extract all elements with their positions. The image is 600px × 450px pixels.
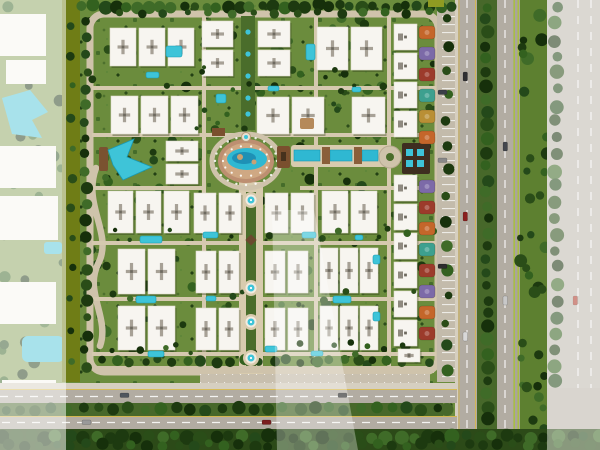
- site-plan-svg: [0, 0, 600, 450]
- median-trees: [483, 228, 495, 240]
- plaza-paving-dots: [263, 179, 265, 181]
- courtyard-trees: [229, 293, 236, 300]
- west-tree-border: [82, 135, 90, 143]
- parked-car: [438, 90, 447, 95]
- south-belt-trees: [465, 439, 474, 448]
- north-tree-border: [426, 7, 434, 15]
- residential-cluster-roof-core: [123, 114, 126, 117]
- courtyard-trees: [403, 229, 411, 237]
- roadside-trees: [522, 264, 530, 272]
- residential-cluster-roof-core: [205, 271, 208, 274]
- courtyard-trees: [377, 235, 382, 240]
- plaza-furniture-dots: [224, 153, 226, 155]
- courtyard-trees: [113, 228, 117, 232]
- flowerbed-highlight: [425, 184, 430, 189]
- north-tree-border: [358, 8, 367, 17]
- compound-garden-trees: [188, 282, 198, 292]
- axis-fountain-jet: [250, 199, 252, 201]
- residential-cluster-roof-core: [122, 46, 125, 49]
- median-end-cap: [441, 403, 454, 416]
- roadside-trees: [540, 404, 547, 411]
- median-trees: [481, 412, 494, 425]
- roadside-trees: [526, 154, 534, 162]
- plaza-furniture-dots: [259, 172, 261, 174]
- parking-trees: [443, 164, 454, 175]
- townhouse-row-roof-core: [404, 123, 407, 126]
- pavilion: [322, 147, 330, 164]
- olive-strip-trees: [66, 204, 75, 213]
- townhouse-row-roof-mark: [398, 330, 403, 337]
- plaza-paving-dots: [215, 152, 217, 154]
- plaza-paving-dots: [227, 140, 229, 142]
- compound-garden-trees: [334, 107, 340, 113]
- plaza-fountain-water: [244, 135, 248, 139]
- clubhouse-roof-core: [408, 354, 411, 357]
- median-trees: [480, 118, 494, 132]
- courtyard-trees: [164, 83, 170, 89]
- street: [92, 352, 436, 356]
- median-trees: [481, 160, 491, 170]
- garden-pool: [216, 94, 226, 103]
- car: [503, 296, 508, 305]
- olive-strip-trees: [69, 264, 76, 271]
- parking-trees: [441, 240, 453, 252]
- south-belt-trees: [205, 439, 213, 447]
- median-trees: [483, 3, 492, 12]
- south-belt-trees: [478, 440, 488, 450]
- roadside-trees: [520, 37, 527, 44]
- south-belt-trees: [486, 430, 496, 440]
- garden-pool: [373, 255, 380, 264]
- south-belt-trees: [357, 439, 367, 449]
- median-trees: [481, 132, 494, 145]
- parking-trees: [445, 292, 453, 300]
- south-buffer-trees: [112, 355, 123, 366]
- plaza-furniture-dots: [266, 153, 268, 155]
- residential-cluster-roof-core: [307, 114, 310, 117]
- median-trees: [122, 402, 134, 414]
- parking-trees: [442, 66, 451, 75]
- north-tree-border: [335, 0, 344, 9]
- axis-pond: [245, 95, 250, 100]
- residential-cluster-roof-core: [363, 211, 366, 214]
- courtyard-trees: [173, 342, 179, 348]
- plaza-paving-dots: [254, 183, 256, 185]
- garden-pool: [140, 236, 162, 243]
- residential-cluster-roof-core: [331, 47, 334, 50]
- median-trees: [482, 175, 494, 187]
- axis-pond: [245, 51, 250, 56]
- residential-cluster-roof-core: [348, 269, 351, 272]
- plaza-furniture-dots: [250, 145, 252, 147]
- pool-deck: [99, 147, 108, 171]
- residential-cluster-roof-core: [205, 328, 208, 331]
- south-belt-trees: [373, 439, 383, 449]
- townhouse-row-roof-core: [404, 187, 407, 190]
- townhouse-row-roof-mark: [398, 63, 403, 70]
- gate-pool: [417, 160, 424, 167]
- compound-garden-trees: [331, 102, 336, 107]
- roadside-trees: [536, 191, 544, 199]
- pavilion-core: [281, 152, 286, 161]
- plaza-paving-dots: [274, 167, 276, 169]
- plaza-paving-dots: [270, 146, 272, 148]
- courtyard-trees: [110, 291, 117, 298]
- west-tree-border: [82, 264, 93, 275]
- courtyard-trees: [297, 71, 304, 78]
- south-belt-trees: [126, 440, 135, 449]
- parking-trees: [443, 141, 453, 151]
- median-trees: [434, 404, 442, 412]
- flowerbed-highlight: [425, 51, 430, 56]
- median-trees: [482, 268, 491, 277]
- olive-strip-trees: [68, 174, 77, 183]
- olive-strip-trees: [67, 327, 74, 334]
- sidewalk: [0, 383, 457, 390]
- plaza-paving-dots: [220, 146, 222, 148]
- residential-cluster-roof-core: [160, 270, 163, 273]
- plaza-furniture-dots: [259, 148, 261, 150]
- parking-trees: [443, 14, 451, 22]
- north-tree-border: [323, 1, 334, 12]
- olive-strip-trees: [68, 358, 75, 365]
- compound-garden-trees: [381, 346, 387, 352]
- south-buffer-trees: [382, 356, 392, 366]
- plaza-paving-dots: [220, 174, 222, 176]
- south-buffer-trees: [184, 357, 193, 366]
- corner-green: [428, 0, 444, 7]
- roadside-trees: [538, 285, 547, 294]
- south-belt-trees: [446, 441, 455, 450]
- townhouse-row-roof-mark: [398, 121, 403, 128]
- residential-cluster-roof-core: [365, 47, 368, 50]
- townhouse-row-roof-core: [404, 36, 407, 39]
- courtyard-trees: [380, 83, 388, 91]
- west-tree-border: [82, 331, 93, 342]
- residential-cluster-roof-core: [228, 328, 231, 331]
- car: [82, 420, 91, 425]
- garden-gazebo: [300, 118, 314, 129]
- courtyard-trees: [127, 295, 133, 301]
- flowerbed-highlight: [425, 310, 430, 315]
- west-tree-border: [84, 68, 92, 76]
- courtyard-trees: [215, 121, 220, 126]
- median-trees: [171, 402, 182, 413]
- linear-pool: [330, 150, 352, 161]
- median-trees: [482, 281, 491, 290]
- north-tree-border: [165, 2, 176, 13]
- car: [262, 420, 271, 425]
- garden-pool: [306, 44, 315, 60]
- roadside-trees: [534, 350, 543, 359]
- west-tree-border: [82, 199, 92, 209]
- residential-cluster-roof-core: [153, 114, 156, 117]
- compound-garden-trees: [149, 156, 158, 165]
- south-belt-trees: [211, 431, 223, 443]
- compound-garden-trees: [225, 302, 231, 308]
- courtyard-trees: [323, 75, 328, 80]
- north-tree-border: [191, 2, 199, 10]
- south-buffer-trees: [98, 356, 106, 364]
- olive-strip-trees: [66, 114, 75, 123]
- roadside-trees: [518, 339, 527, 348]
- median-trees: [480, 186, 491, 197]
- parking-trees: [441, 339, 452, 350]
- south-belt-trees: [170, 431, 180, 441]
- pavilion: [354, 147, 362, 164]
- west-tree-border: [83, 313, 91, 321]
- median-trees: [484, 213, 493, 222]
- townhouse-row-roof-core: [404, 245, 407, 248]
- plaza-paving-dots: [270, 174, 272, 176]
- south-belt-trees: [158, 431, 169, 442]
- west-tree-border: [83, 247, 91, 255]
- sidewalk: [455, 0, 458, 450]
- south-belt-trees: [508, 440, 516, 448]
- lagoon-island: [237, 154, 243, 160]
- townhouse-row-roof-core: [404, 65, 407, 68]
- residential-cluster-roof-core: [367, 114, 370, 117]
- north-tree-border: [345, 2, 354, 11]
- courtyard-trees: [137, 346, 145, 354]
- plaza-paving-dots: [235, 137, 237, 139]
- linear-pool: [362, 150, 378, 161]
- linear-pool: [294, 150, 320, 161]
- median-trees: [482, 348, 494, 360]
- townhouse-row-roof-core: [404, 332, 407, 335]
- median-trees: [388, 403, 398, 413]
- courtyard-trees: [348, 339, 355, 346]
- plaza-furniture-dots: [222, 160, 224, 162]
- north-tree-border: [294, 10, 302, 18]
- townhouse-row-roof-core: [404, 94, 407, 97]
- courtyard-trees: [338, 88, 344, 94]
- olive-strip-trees: [66, 52, 75, 61]
- residential-cluster-roof-core: [216, 62, 219, 65]
- south-buffer-trees: [195, 355, 206, 366]
- courtyard-trees: [229, 234, 233, 238]
- plaza-furniture-dots: [231, 148, 233, 150]
- garden-pool: [146, 72, 159, 78]
- north-tree-border: [228, 10, 237, 19]
- plaza-furniture-dots: [266, 166, 268, 168]
- car: [503, 142, 508, 151]
- garden-pool: [268, 86, 279, 91]
- parking-trees: [442, 365, 454, 377]
- olive-strip-trees: [69, 235, 75, 241]
- north-tree-border: [412, 1, 422, 11]
- median-trees: [480, 67, 490, 77]
- south-buffer-trees: [142, 358, 149, 365]
- west-tree-border: [81, 17, 90, 26]
- west-tree-border: [81, 50, 90, 59]
- garden-pool: [136, 296, 156, 303]
- median-trees: [483, 376, 492, 385]
- west-tree-border: [81, 362, 92, 373]
- south-buffer-trees: [425, 358, 434, 367]
- south-buffer-trees: [212, 357, 223, 368]
- median-trees: [481, 25, 494, 38]
- roadside-trees: [525, 193, 535, 203]
- residential-cluster-roof-core: [175, 211, 178, 214]
- roadside-trees: [519, 50, 528, 59]
- residential-cluster-roof-core: [328, 269, 331, 272]
- entry-gate: [402, 143, 430, 174]
- parked-car: [438, 264, 447, 269]
- flowerbed-highlight: [425, 247, 430, 252]
- road-edge-line: [475, 0, 476, 450]
- courtyard-trees: [163, 345, 169, 351]
- clubhouse-pair-roof-core: [181, 150, 184, 153]
- plaza-paving-dots: [254, 137, 256, 139]
- compound-garden-trees: [95, 93, 101, 99]
- median-trees: [480, 13, 491, 24]
- courtyard-trees: [88, 75, 96, 83]
- garden-pool: [166, 46, 182, 57]
- roadside-trees: [533, 9, 546, 22]
- residential-cluster-roof-core: [183, 114, 186, 117]
- courtyard-trees: [241, 126, 247, 132]
- axis-fountain-jet: [250, 287, 252, 289]
- flowerbed-highlight: [425, 72, 430, 77]
- plaza-paving-dots: [214, 160, 216, 162]
- south-buffer-trees: [124, 358, 133, 367]
- median-trees: [481, 254, 491, 264]
- north-tree-border: [314, 8, 321, 15]
- flowerbed-highlight: [425, 268, 430, 273]
- axis-pond: [245, 111, 250, 116]
- courtyard-trees: [246, 81, 252, 87]
- olive-strip-trees: [67, 22, 75, 30]
- courtyard-trees: [266, 232, 273, 239]
- townhouse-row-roof-mark: [398, 214, 403, 221]
- road-edge-line: [0, 416, 457, 417]
- flowerbed-highlight: [425, 289, 430, 294]
- north-tree-border: [259, 1, 268, 10]
- courtyard-trees: [411, 289, 416, 294]
- plaza-paving-dots: [235, 183, 237, 185]
- median-trees: [483, 241, 492, 250]
- median-trees: [249, 404, 260, 415]
- north-tree-border: [270, 9, 279, 18]
- roadside-trees: [519, 87, 529, 97]
- plaza-paving-dots: [274, 152, 276, 154]
- median-trees: [479, 80, 493, 94]
- north-tree-border: [447, 2, 457, 12]
- south-buffer-road: [96, 366, 434, 373]
- west-tree-border: [80, 99, 91, 110]
- north-tree-border: [138, 10, 147, 19]
- townhouse-row-roof-core: [404, 216, 407, 219]
- median-trees: [480, 147, 493, 160]
- median-trees: [481, 106, 494, 119]
- residential-cluster-roof-core: [368, 269, 371, 272]
- flowerbed-highlight: [425, 93, 430, 98]
- courtyard-trees: [195, 126, 199, 130]
- median-trees: [184, 404, 196, 416]
- plaza-paving-dots: [227, 179, 229, 181]
- courtyard-trees: [310, 68, 314, 72]
- residential-cluster-roof-core: [130, 327, 133, 330]
- residential-cluster-roof-core: [147, 211, 150, 214]
- residential-cluster-roof-core: [273, 33, 276, 36]
- north-tree-border: [185, 9, 191, 15]
- south-belt-trees: [175, 441, 183, 449]
- west-tree-border: [80, 149, 89, 158]
- courtyard-trees: [385, 226, 391, 232]
- roadside-trees: [522, 382, 532, 392]
- parking-trees: [443, 41, 454, 52]
- median-trees: [356, 403, 366, 413]
- west-tree-border: [81, 85, 91, 95]
- south-buffer-trees: [369, 356, 377, 364]
- west-tree-border: [81, 279, 92, 290]
- north-tree-border: [401, 1, 410, 10]
- south-belt-trees: [538, 433, 548, 443]
- median-trees: [480, 53, 491, 64]
- residential-cluster-roof-core: [348, 327, 351, 330]
- median-trees: [482, 202, 492, 212]
- plaza-paving-dots: [245, 184, 247, 186]
- plaza-furniture-dots: [231, 172, 233, 174]
- south-belt-trees: [233, 439, 243, 449]
- roadside-trees: [525, 271, 533, 279]
- flowerbed-highlight: [425, 114, 430, 119]
- flowerbed-highlight: [425, 331, 430, 336]
- car: [463, 72, 468, 81]
- plaza-furniture-dots: [240, 175, 242, 177]
- faded-overlay-west: [0, 0, 66, 450]
- faded-overlay-east: [547, 0, 600, 450]
- south-belt-trees: [66, 430, 78, 442]
- west-tree-border: [82, 32, 92, 42]
- residential-cluster-roof-core: [228, 271, 231, 274]
- gate-pool: [406, 160, 413, 167]
- townhouse-row-roof-core: [404, 274, 407, 277]
- north-tree-border: [204, 9, 212, 17]
- residential-cluster-roof-core: [334, 211, 337, 214]
- residential-cluster-roof-core: [273, 62, 276, 65]
- north-tree-border: [251, 9, 257, 15]
- flowerbed-highlight: [425, 135, 430, 140]
- parking-trees: [441, 320, 449, 328]
- courtyard-trees: [199, 69, 205, 75]
- compound-garden-trees: [102, 262, 110, 270]
- axis-pond: [245, 73, 250, 78]
- olive-strip-trees: [70, 146, 76, 152]
- courtyard-trees: [332, 67, 338, 73]
- plaza-furniture-dots: [240, 145, 242, 147]
- axis-fountain-jet: [250, 357, 252, 359]
- median-trees: [79, 403, 89, 413]
- west-tree-border: [79, 214, 91, 226]
- north-tree-border: [158, 9, 167, 18]
- roadside-trees: [528, 416, 537, 425]
- courtyard-trees: [335, 228, 342, 235]
- west-tree-border: [80, 118, 89, 127]
- courtyard-trees: [343, 288, 350, 295]
- garden-pool: [148, 351, 164, 357]
- site-plan-canvas: [0, 0, 600, 450]
- courtyard-trees: [400, 342, 406, 348]
- road-edge-line: [459, 0, 460, 450]
- street: [92, 186, 204, 190]
- garden-pool: [352, 87, 361, 92]
- parking-trees: [441, 192, 450, 201]
- median-trees: [218, 404, 228, 414]
- median-trees: [481, 94, 492, 105]
- townhouse-row-roof-mark: [398, 301, 403, 308]
